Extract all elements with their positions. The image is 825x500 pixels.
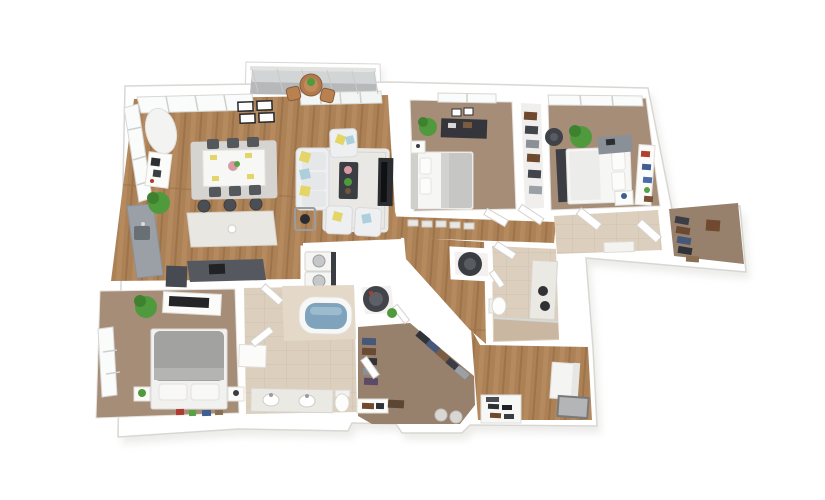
closet-item: [686, 256, 699, 263]
bar-stool: [224, 199, 236, 211]
window-mullion: [580, 95, 581, 105]
bed1-blanket-fold: [441, 153, 449, 208]
placemat: [245, 153, 252, 158]
bookshelf-item-brown: [644, 196, 653, 203]
closet-shelf-item: [525, 126, 538, 135]
bed1-dresser: [441, 118, 488, 139]
coffee-table-plant: [344, 178, 352, 186]
closet-shelf-item: [526, 140, 539, 149]
dining-chair: [249, 185, 261, 195]
master-bed-fold: [154, 368, 224, 380]
island-vase: [228, 225, 236, 233]
coffee-table-flowers: [344, 166, 352, 174]
nightstand-lamp: [233, 390, 239, 396]
hanging-clothes: [362, 338, 376, 345]
hanging-clothes: [364, 378, 378, 385]
coffee-bar-dot: [150, 179, 154, 183]
closet-shelf-item: [524, 112, 537, 121]
closet-ottoman: [450, 411, 462, 423]
bed2-duvet-fold: [569, 150, 601, 200]
office-chair-seat: [550, 133, 558, 141]
bed1-wall-frame: [464, 108, 473, 115]
dining-chair: [209, 187, 221, 197]
bed2-pillow: [612, 152, 626, 171]
sofa-pillow-yellow: [299, 185, 311, 197]
dryer-door: [313, 275, 325, 287]
bed2-plant-leaf: [569, 125, 581, 137]
washer-door: [313, 255, 325, 267]
bed1-wall-frame: [452, 109, 461, 116]
wall-frame: [238, 102, 253, 112]
tv-screen: [381, 162, 388, 202]
bed1-pillow: [420, 178, 431, 194]
centerpiece-leaves: [234, 161, 240, 167]
coffee-table-bowl: [345, 188, 351, 194]
shoe-closet-item: [486, 397, 499, 402]
placemat: [210, 155, 217, 160]
kitchen-peninsula: [187, 259, 266, 282]
coffee-bar-cabinet: [145, 152, 172, 189]
hanging-clothes: [362, 348, 376, 355]
master-plant-leaf: [134, 295, 146, 307]
balcony-chair: [320, 88, 336, 104]
master-tv: [169, 296, 209, 308]
closet-bench: [388, 400, 404, 409]
bookshelf-item-blue: [642, 164, 651, 171]
armchair-pillow-blue: [361, 213, 371, 223]
water-heater-dot: [369, 291, 373, 295]
kitchen-faucet: [141, 222, 145, 226]
hallbath-toilet: [492, 297, 506, 315]
bathtub-water-highlight: [310, 307, 342, 316]
hall-trim-item: [450, 222, 460, 228]
bed1-plant-leaf: [418, 117, 428, 127]
wall-frame: [257, 101, 272, 111]
window-mullion: [360, 91, 361, 103]
balcony-rail-top: [250, 68, 376, 70]
dresser-decor: [448, 123, 456, 128]
fridge: [166, 266, 188, 288]
balcony-plant: [307, 78, 315, 86]
master-bed-pillow: [159, 384, 187, 400]
shoes: [490, 413, 501, 418]
master-bed-pillow: [191, 384, 219, 400]
hall-trim-item: [422, 221, 432, 227]
shoes: [502, 405, 512, 410]
dining-chair: [229, 186, 241, 196]
shelf-decor-green: [189, 410, 196, 416]
sofa-pillow-blue: [299, 168, 311, 180]
kitchen-sink: [134, 226, 150, 240]
hallbath-sink: [538, 286, 548, 296]
bathtub-water: [305, 303, 347, 330]
laundry-side-panel: [331, 252, 336, 291]
side-table-lamp: [300, 214, 310, 224]
bar-stool: [198, 200, 210, 212]
kitchen-plant-leaf: [147, 192, 159, 204]
bed2-pillow: [612, 172, 626, 191]
wall-frame: [259, 113, 274, 123]
espresso-machine: [151, 157, 161, 166]
dresser-decor: [463, 122, 472, 128]
floor-plan-render: [0, 0, 825, 500]
shelf-decor-brown: [215, 410, 223, 415]
dining-chair: [207, 139, 219, 149]
bar-stool: [250, 198, 262, 210]
placemat: [212, 176, 219, 181]
closet-box: [706, 220, 721, 232]
closet-shelf-item: [527, 154, 540, 163]
window-mullion: [340, 92, 341, 104]
sink-faucet: [305, 394, 309, 398]
bed1-pillow: [420, 158, 431, 174]
wall-frame: [240, 114, 255, 124]
ensuite-vanity: [604, 241, 634, 252]
washer-unit-top: [464, 258, 476, 270]
dining-chair: [247, 137, 259, 147]
nightstand-plant: [138, 389, 146, 397]
bookshelf-item-red: [641, 151, 650, 158]
balcony-chair: [286, 86, 302, 102]
closet-ottoman: [435, 409, 447, 421]
bed1-headboard: [411, 152, 418, 209]
entry-doormat: [557, 396, 588, 418]
floor-plan-canvas: [0, 0, 825, 500]
masterbath-cabinet: [239, 345, 267, 368]
shelf-decor-red: [176, 409, 184, 415]
dining-chair: [227, 138, 239, 148]
masterbath-toilet: [335, 394, 349, 412]
hallbath-sink: [540, 301, 550, 311]
closet-shelf-item: [528, 170, 541, 179]
nightstand-plant-blue: [621, 193, 627, 199]
bookshelf-item-blue: [643, 177, 652, 184]
bookshelf-plant: [644, 187, 650, 193]
laptop: [209, 264, 226, 275]
hall-trim-item: [464, 223, 474, 229]
window-bedroom2: [548, 95, 643, 106]
shelf-decor-blue: [202, 410, 211, 416]
desk-item: [606, 139, 615, 146]
placemat: [247, 174, 254, 179]
closet-shelf-item: [362, 403, 374, 409]
hall-trim-item: [408, 220, 418, 226]
shoes: [488, 404, 499, 409]
hall-trim-item: [436, 221, 446, 227]
hall-plant: [387, 308, 397, 318]
closet-shelf-item: [376, 403, 384, 409]
closet-shelf-item: [529, 186, 542, 195]
sink-faucet: [269, 393, 273, 397]
shoes: [504, 414, 514, 419]
plan-root: [96, 62, 750, 444]
window-mullion: [612, 96, 613, 106]
coffee-bar-item: [153, 170, 162, 178]
bed1-lamp: [416, 144, 420, 148]
